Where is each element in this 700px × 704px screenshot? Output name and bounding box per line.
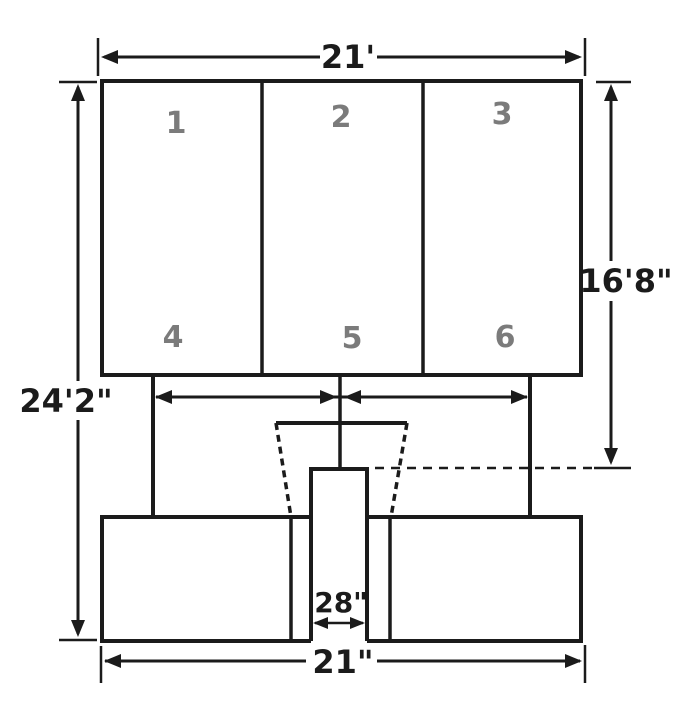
dim-bottom-arrow-left-icon [104,654,121,668]
gusset-slant-left [276,423,291,517]
dim-leg-arrow-center-left-icon [320,390,337,404]
dim-top-arrow-left-icon [101,50,118,64]
diagram-canvas: 1 2 3 4 5 6 21' 24'2" 16'8" 28" [0,0,700,700]
dim-right-label: 16'8" [579,262,672,300]
dim-pole-label: 28" [314,586,368,619]
dim-right-arrow-up-icon [604,84,618,101]
panel-number-1: 1 [166,106,187,141]
gusset-slant-right [391,423,407,517]
dim-leg-arrow-center-right-icon [344,390,361,404]
dim-leg-arrow-outer-right-icon [511,390,528,404]
panel-number-4: 4 [163,320,184,355]
dim-bottom-label: 21" [312,643,373,681]
dim-bottom-arrow-right-icon [565,654,582,668]
structure-elevation-diagram: 1 2 3 4 5 6 21' 24'2" 16'8" 28" [0,0,700,700]
dim-top-label: 21' [321,38,375,76]
dim-left-arrow-up-icon [71,84,85,101]
dim-right-arrow-down-icon [604,448,618,465]
panel-number-5: 5 [342,321,363,356]
dim-left-label: 24'2" [19,382,112,420]
dim-left-arrow-down-icon [71,620,85,637]
panel-number-3: 3 [492,97,513,132]
dim-top-arrow-right-icon [565,50,582,64]
dim-leg-arrow-outer-left-icon [155,390,172,404]
panel-number-6: 6 [495,320,516,355]
panel-number-2: 2 [331,100,352,135]
